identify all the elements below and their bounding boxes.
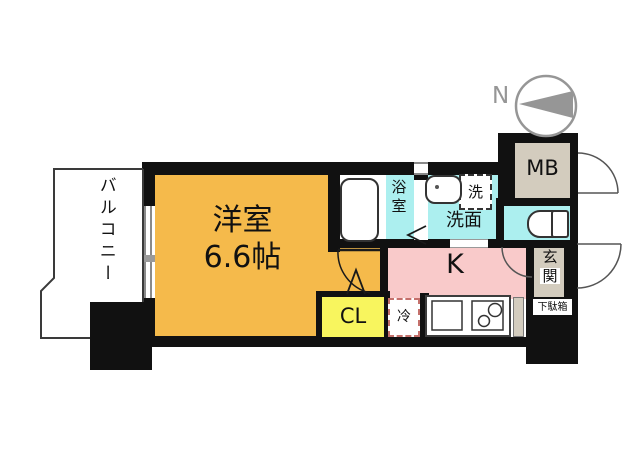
compass-label: N: [492, 84, 509, 109]
mb-door-arc: [578, 153, 618, 193]
main-room-label: 洋室 6.6帖: [150, 202, 335, 276]
main-room-name: 洋室: [150, 202, 335, 239]
entrance-label-bottom: 関: [540, 268, 560, 285]
bathtub-icon: [341, 179, 378, 241]
entrance-door-arc: [577, 244, 621, 288]
pillar: [90, 302, 152, 370]
washroom-label: 洗面: [430, 211, 498, 231]
meter-box-label: MB: [515, 157, 570, 180]
main-room-size: 6.6帖: [150, 239, 335, 276]
toilet-tank-icon: [552, 211, 568, 237]
stove-burner-icon: [489, 304, 502, 317]
bathroom-label: 浴室: [390, 179, 407, 217]
shoe-box: 下駄箱: [531, 297, 574, 317]
entrance-label-top: 玄: [540, 249, 560, 266]
washbasin-faucet-icon: [435, 185, 439, 189]
balcony-label: バルコニー: [96, 176, 115, 286]
entrance-label: 玄 関: [540, 249, 560, 284]
bath-door-chevron: [408, 226, 426, 244]
stove-burner-icon: [479, 316, 490, 327]
kitchen-door-arc: [502, 247, 532, 277]
floor-plan: 洗 冷 CL: [0, 0, 640, 455]
kitchen-label: K: [405, 250, 505, 280]
shoe-box-label: 下駄箱: [538, 302, 568, 313]
washbasin-icon: [426, 176, 461, 203]
room-door-arc: [338, 250, 370, 293]
kitchen-sink-icon: [432, 301, 462, 330]
